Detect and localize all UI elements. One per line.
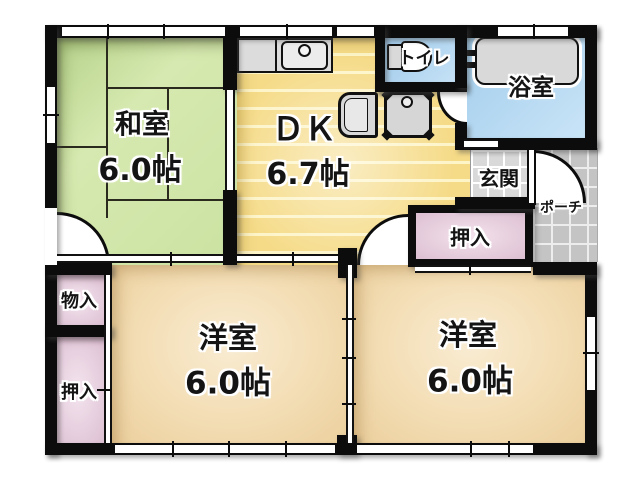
door-tick (97, 389, 111, 391)
toilet-label: トイレ (399, 44, 450, 69)
yoshitsu-left-label: 洋室 (199, 315, 257, 357)
window-top-washitsu (62, 25, 225, 38)
wall-genkan-bottom (455, 197, 535, 209)
sliding-door-dk-south (237, 254, 338, 263)
yoshitsu-right-label: 洋室 (439, 312, 497, 354)
window-tick (470, 441, 472, 457)
sliding-door-yoshitsu-divider (346, 265, 354, 443)
door-tick (342, 403, 356, 405)
water-heater-panel (344, 98, 368, 132)
yoshitsu-right-size-label: 6.0帖 (427, 356, 513, 401)
window-tick (172, 441, 174, 457)
sliding-door-oshiire-right (415, 265, 531, 273)
window-tick (286, 24, 288, 39)
window-bottom-yoshitsu-right (357, 443, 533, 455)
window-tick (533, 24, 535, 39)
oshiire-right-label: 押入 (450, 222, 490, 251)
sliding-door-closets (104, 275, 112, 443)
window-tick (508, 441, 510, 457)
wall-washitsu-dk-lower (223, 190, 237, 265)
kitchen-counter-divider (275, 38, 277, 73)
dk-size-label: 6.7帖 (266, 149, 349, 193)
wall-closet-divider (45, 325, 112, 337)
floorplan-canvas: 和室 6.0帖 ＤＫ 6.7帖 トイレ 浴室 玄関 ポーチ 押入 物入 押入 洋… (0, 0, 640, 480)
monoire-label: 物入 (61, 287, 97, 313)
sliding-door-washitsu-south (57, 254, 223, 263)
wall-porch-room (533, 262, 597, 275)
door-tick (292, 252, 294, 266)
door-tick (469, 262, 471, 275)
tatami-line (106, 38, 108, 218)
tatami-line (107, 199, 237, 201)
porch-label: ポーチ (540, 197, 582, 217)
wall-toilet-bottom (375, 82, 467, 92)
wall-right-upper (585, 25, 597, 148)
wall-washitsu-dk-upper (223, 38, 237, 90)
door-tick (342, 318, 356, 320)
bathtub-faucet-icon (467, 62, 477, 68)
washing-machine-faucet-icon (401, 96, 413, 108)
door-tick (170, 252, 172, 266)
window-tick (228, 441, 230, 457)
entry-door-leaf (527, 148, 536, 205)
window-tick (583, 352, 599, 354)
washitsu-door-gap (45, 208, 57, 265)
bathroom-door (464, 139, 498, 149)
yoshitsu-left-size-label: 6.0帖 (185, 358, 271, 403)
washitsu-size-label: 6.0帖 (98, 145, 181, 189)
window-tick (285, 441, 287, 457)
tatami-line (107, 87, 237, 89)
window-tick (43, 114, 59, 116)
wall-bathroom-left (455, 25, 467, 88)
sliding-door-washitsu-dk (225, 90, 235, 190)
door-tick (342, 357, 356, 359)
washitsu-label: 和室 (115, 103, 169, 142)
bathtub-faucet-icon (467, 50, 477, 56)
kitchen-faucet-icon (298, 44, 311, 57)
dk-label: ＤＫ (272, 104, 336, 150)
oshiire-left-label: 押入 (61, 378, 97, 404)
window-tick (107, 24, 109, 39)
window-tick (163, 24, 165, 39)
genkan-label: 玄関 (479, 163, 519, 192)
bathroom-label: 浴室 (508, 68, 554, 102)
yoshitsu-right-room-floor (354, 265, 585, 443)
window-top-dk-small (337, 25, 374, 38)
window-bottom-yoshitsu-left (115, 443, 335, 455)
